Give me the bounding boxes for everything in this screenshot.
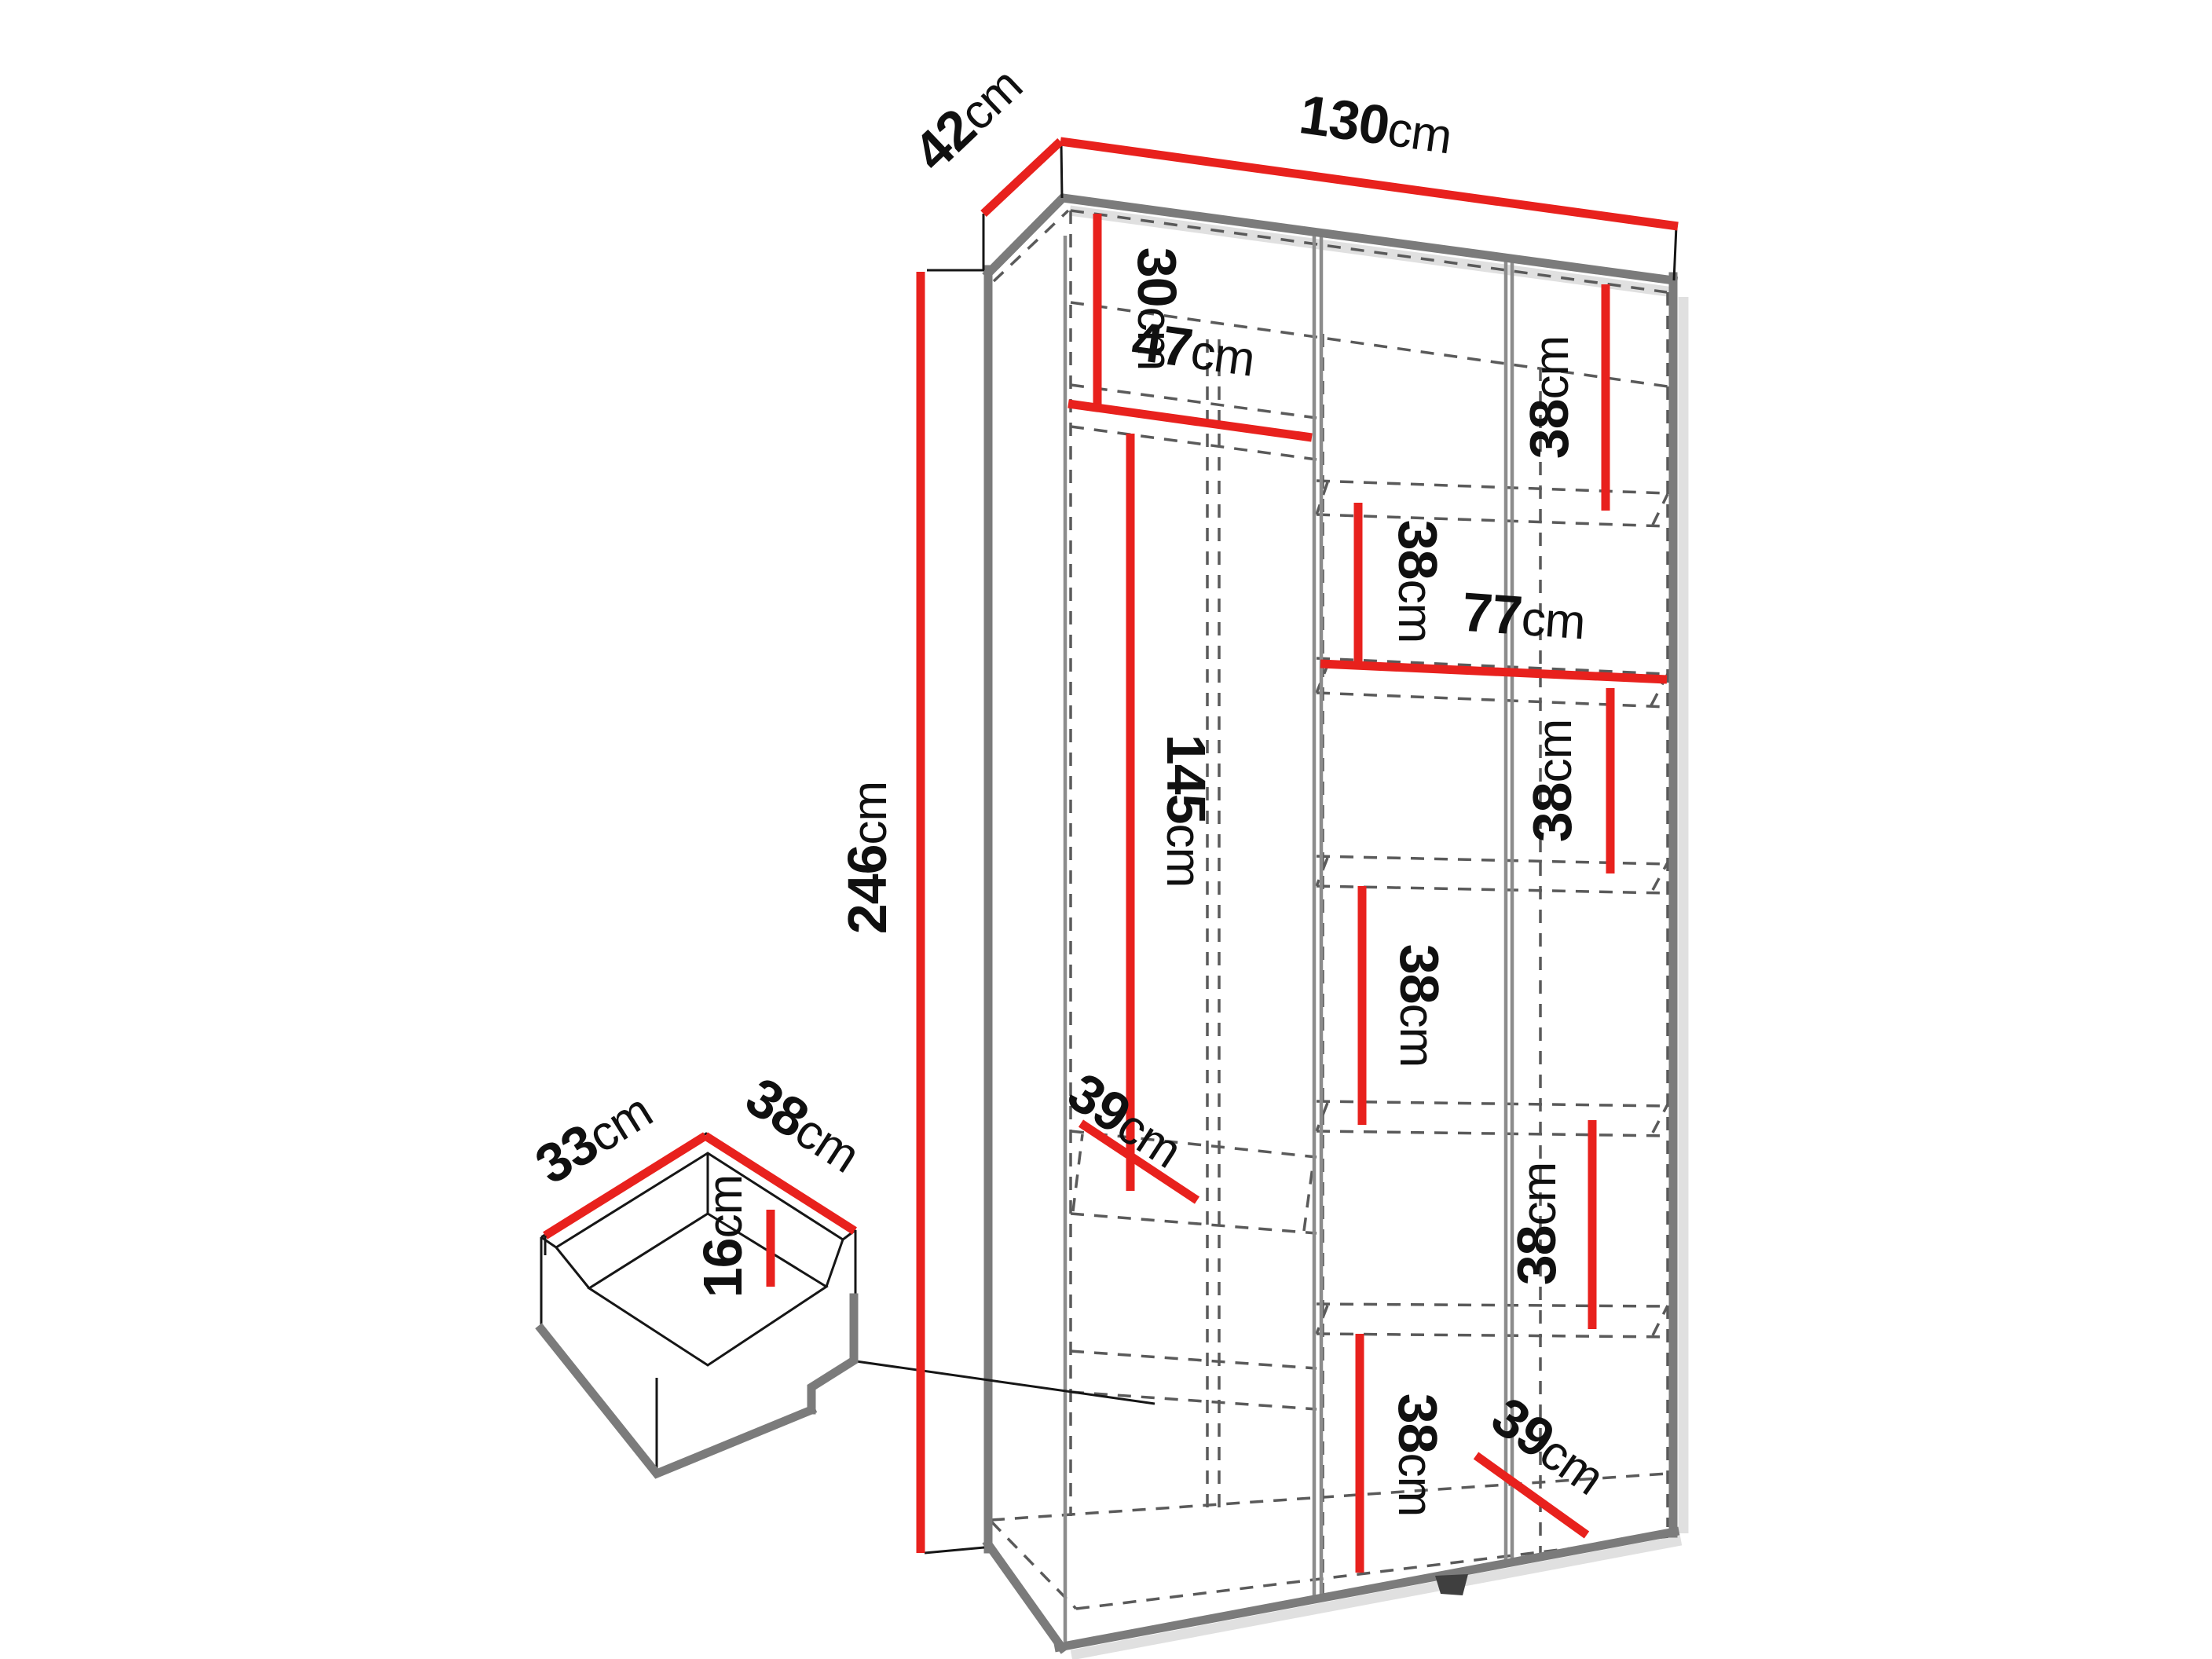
bottom-shadow — [1071, 1540, 1681, 1655]
drawer-right-bottom-edge — [811, 1298, 854, 1410]
wardrobe-dimension-drawing: 130cm 42cm 246cm 30cm 47cm 145cm 39cm 77… — [0, 0, 2212, 1659]
shelf-w3-front — [1317, 1131, 1668, 1136]
dim-label-38-right-top: 38cm — [1518, 336, 1580, 460]
shelf-77-front — [1317, 693, 1668, 707]
shelf-w3-right-tick — [1653, 1104, 1668, 1133]
bottom-edge — [1059, 1532, 1675, 1647]
shelf-low-left-back — [1071, 1351, 1317, 1368]
dim-label-38-right-lower: 38cm — [1506, 1163, 1567, 1286]
dim-label-drawer-16: 16cm — [692, 1175, 753, 1298]
dim-label-246: 246cm — [837, 782, 898, 934]
apex-extension — [1061, 144, 1062, 198]
shelf-w2-front — [1317, 886, 1668, 893]
ceiling-left-edge — [994, 211, 1068, 281]
height-bottom-tick — [925, 1547, 984, 1553]
drawer-callout-line — [856, 1361, 1155, 1404]
dim-label-38-right-mid: 38cm — [1522, 720, 1583, 843]
dim-line-42 — [983, 141, 1060, 214]
dim-label-47: 47cm — [1128, 310, 1258, 388]
shelf-w4-front — [1317, 1334, 1668, 1337]
drawer-bottom-edges — [541, 1329, 811, 1474]
foot-glide — [1435, 1574, 1468, 1595]
shelf-w1-back — [1317, 481, 1668, 493]
shelf-mid-left-end-tick-a — [1073, 1134, 1082, 1211]
dim-label-38-mid-lower: 38cm — [1389, 944, 1450, 1068]
shelf-mid-left-end-tick-b — [1304, 1161, 1313, 1231]
dim-label-39-right: 39cm — [1481, 1386, 1617, 1507]
dim-label-42: 42cm — [902, 53, 1033, 182]
dim-label-130: 130cm — [1296, 83, 1456, 165]
shelf-w2-right-tick — [1653, 862, 1668, 890]
drawer-labels: 33cm 38cm 16cm — [525, 1066, 872, 1298]
shelf-w1-right-tick — [1653, 494, 1668, 525]
shelf-w2-back — [1317, 856, 1668, 864]
bottom-left-edge — [988, 1544, 1062, 1648]
drawer-detail: 33cm 38cm 16cm — [525, 1066, 872, 1474]
diagram-canvas: 130cm 42cm 246cm 30cm 47cm 145cm 39cm 77… — [0, 0, 2212, 1659]
shelf-w4-back — [1317, 1304, 1668, 1306]
shelf-w1-front — [1317, 515, 1668, 526]
shelf-w4-right-tick — [1653, 1306, 1668, 1335]
shelf-low-left-front — [1071, 1392, 1317, 1409]
shadow-edges — [1070, 211, 1683, 1655]
dim-label-38-mid-upper: 38cm — [1387, 520, 1448, 643]
shelf-w3-back — [1317, 1101, 1668, 1106]
dim-label-38-mid-bottom: 38cm — [1387, 1393, 1448, 1517]
dim-label-77: 77cm — [1460, 581, 1588, 651]
shelf-mid-left-front — [1071, 1214, 1317, 1233]
dim-label-145: 145cm — [1155, 734, 1217, 887]
